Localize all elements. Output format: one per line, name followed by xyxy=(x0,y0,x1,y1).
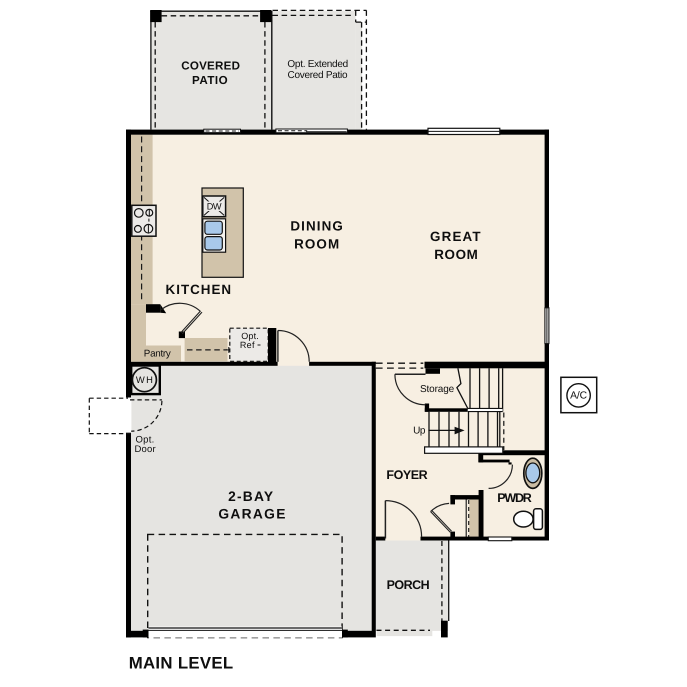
svg-text:DW: DW xyxy=(207,202,222,212)
svg-text:MAIN LEVEL: MAIN LEVEL xyxy=(129,653,234,672)
svg-text:PORCH: PORCH xyxy=(387,578,430,592)
svg-text:ROOM: ROOM xyxy=(434,247,478,262)
svg-text:Up: Up xyxy=(413,426,426,437)
svg-text:WH: WH xyxy=(136,374,153,385)
svg-text:Opt. Extended: Opt. Extended xyxy=(287,59,348,70)
svg-text:Ref: Ref xyxy=(240,340,255,350)
svg-text:Storage: Storage xyxy=(420,384,455,395)
svg-text:GREAT: GREAT xyxy=(430,229,481,244)
svg-text:A/C: A/C xyxy=(570,391,588,402)
svg-text:COVERED: COVERED xyxy=(181,60,240,73)
svg-text:FOYER: FOYER xyxy=(386,468,427,482)
svg-text:Covered Patio: Covered Patio xyxy=(288,70,348,81)
svg-text:PATIO: PATIO xyxy=(192,74,228,87)
svg-text:DINING: DINING xyxy=(290,218,343,233)
svg-text:PWDR: PWDR xyxy=(497,491,532,505)
svg-text:KITCHEN: KITCHEN xyxy=(166,282,232,297)
svg-text:Pantry: Pantry xyxy=(144,349,171,360)
svg-text:2-BAY: 2-BAY xyxy=(228,489,273,504)
svg-text:ROOM: ROOM xyxy=(294,236,339,251)
svg-text:Door: Door xyxy=(135,444,156,455)
